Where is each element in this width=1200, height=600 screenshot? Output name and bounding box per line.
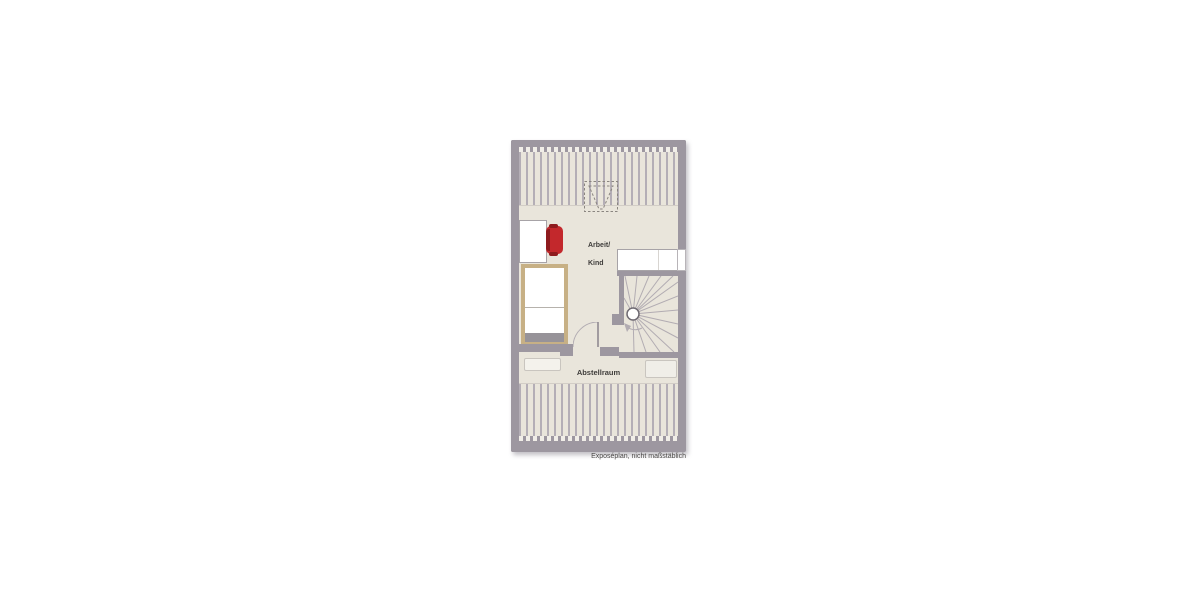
wall-top [511,140,686,147]
spiral-staircase-icon [624,276,678,352]
window-right-wall [677,249,686,271]
chair-armrest-bottom [549,252,558,256]
door-swing-icon [573,322,599,348]
room-label-abstellraum: Abstellraum [563,368,634,377]
storage-shelf-left [524,358,561,371]
footnote-disclaimer: Exposéplan, nicht maßstäblich [511,453,686,460]
wall-bottom-dentil-pattern [519,436,678,441]
wall-left [511,140,519,452]
office-chair-icon [546,226,563,254]
room-label-line1: Arbeit/ [588,242,610,249]
partition-wall-right-of-door [600,347,619,356]
bed-icon [521,264,568,346]
bed-blanket-line [525,307,564,308]
stair-center-pole [627,308,639,320]
page-canvas: Arbeit/ Kind Abstellraum Exposéplan, nic… [0,0,1200,600]
wall-top-dentil-pattern [519,147,678,152]
room-label-arbeit-kind: Arbeit/ Kind [588,241,632,268]
stairwell-wall-bottom [619,352,686,358]
wall-right [678,140,686,452]
chair-backrest [546,229,550,251]
room-label-line2: Kind [588,260,604,267]
storage-shelf-right [645,360,677,378]
floor-plan: Arbeit/ Kind Abstellraum [511,140,686,452]
desk-icon [519,220,547,263]
chair-armrest-top [549,224,558,228]
partition-wall-pillar [560,344,573,356]
dashed-chimney-outline-icon [584,181,618,212]
bed-foot-bench [525,333,564,342]
roof-slope-hatch-bottom [519,383,678,437]
cabinet-divider-line [658,250,659,270]
wall-bottom [511,441,686,452]
